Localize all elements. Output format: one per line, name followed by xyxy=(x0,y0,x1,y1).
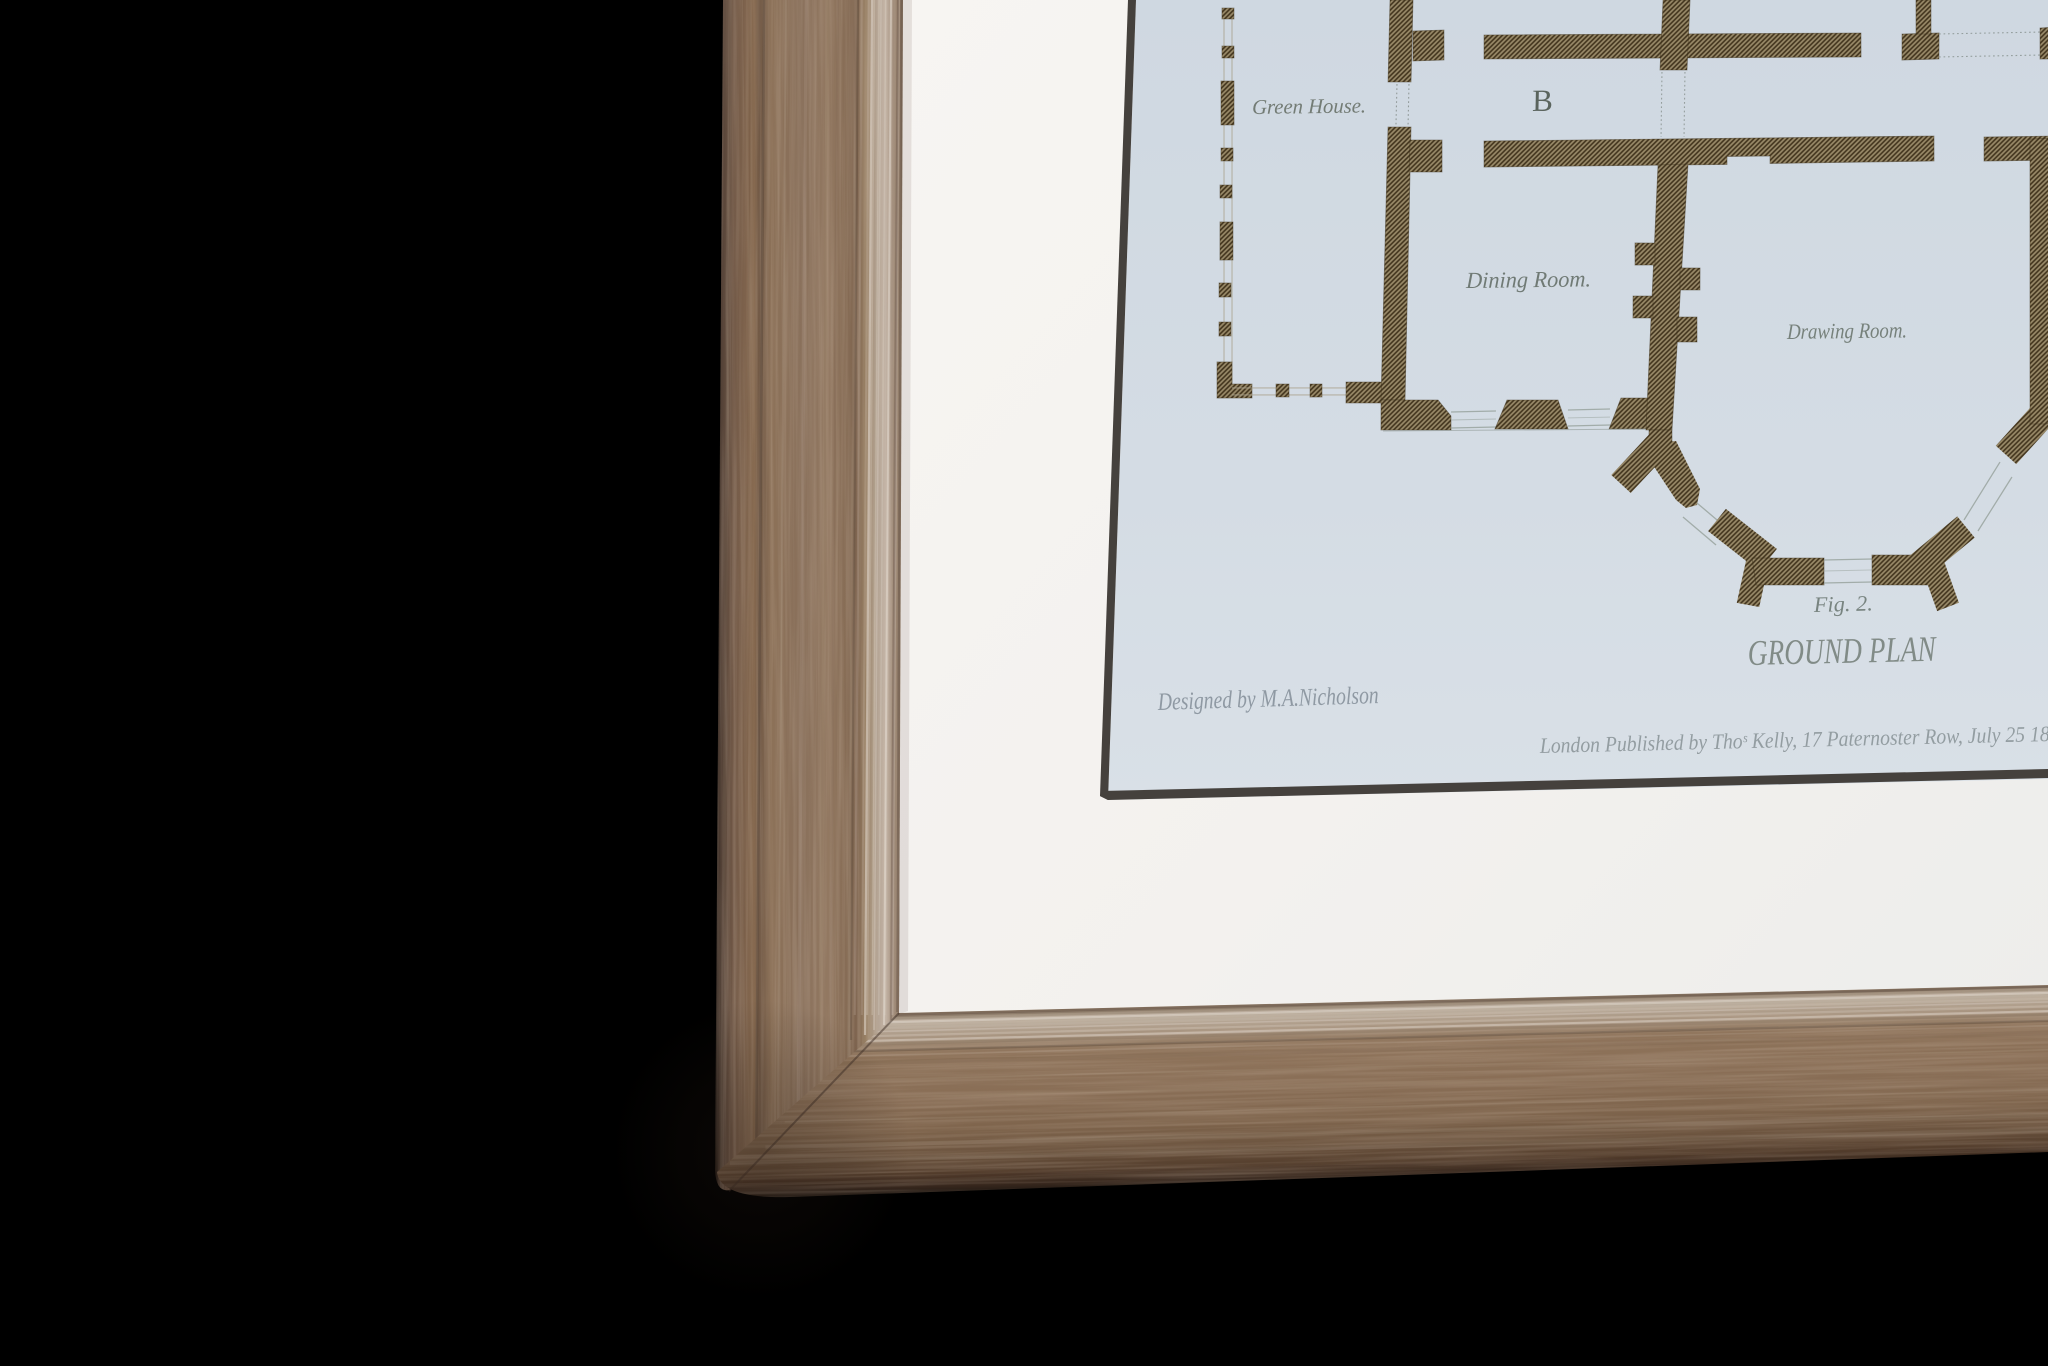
svg-text:B: B xyxy=(1532,83,1553,118)
svg-text:Drawing Room.: Drawing Room. xyxy=(1786,317,1907,344)
svg-text:Fig. 2.: Fig. 2. xyxy=(1812,590,1873,617)
svg-text:Green House.: Green House. xyxy=(1252,93,1367,118)
svg-text:Dining Room.: Dining Room. xyxy=(1465,266,1592,293)
svg-text:GROUND PLAN: GROUND PLAN xyxy=(1747,629,1937,673)
